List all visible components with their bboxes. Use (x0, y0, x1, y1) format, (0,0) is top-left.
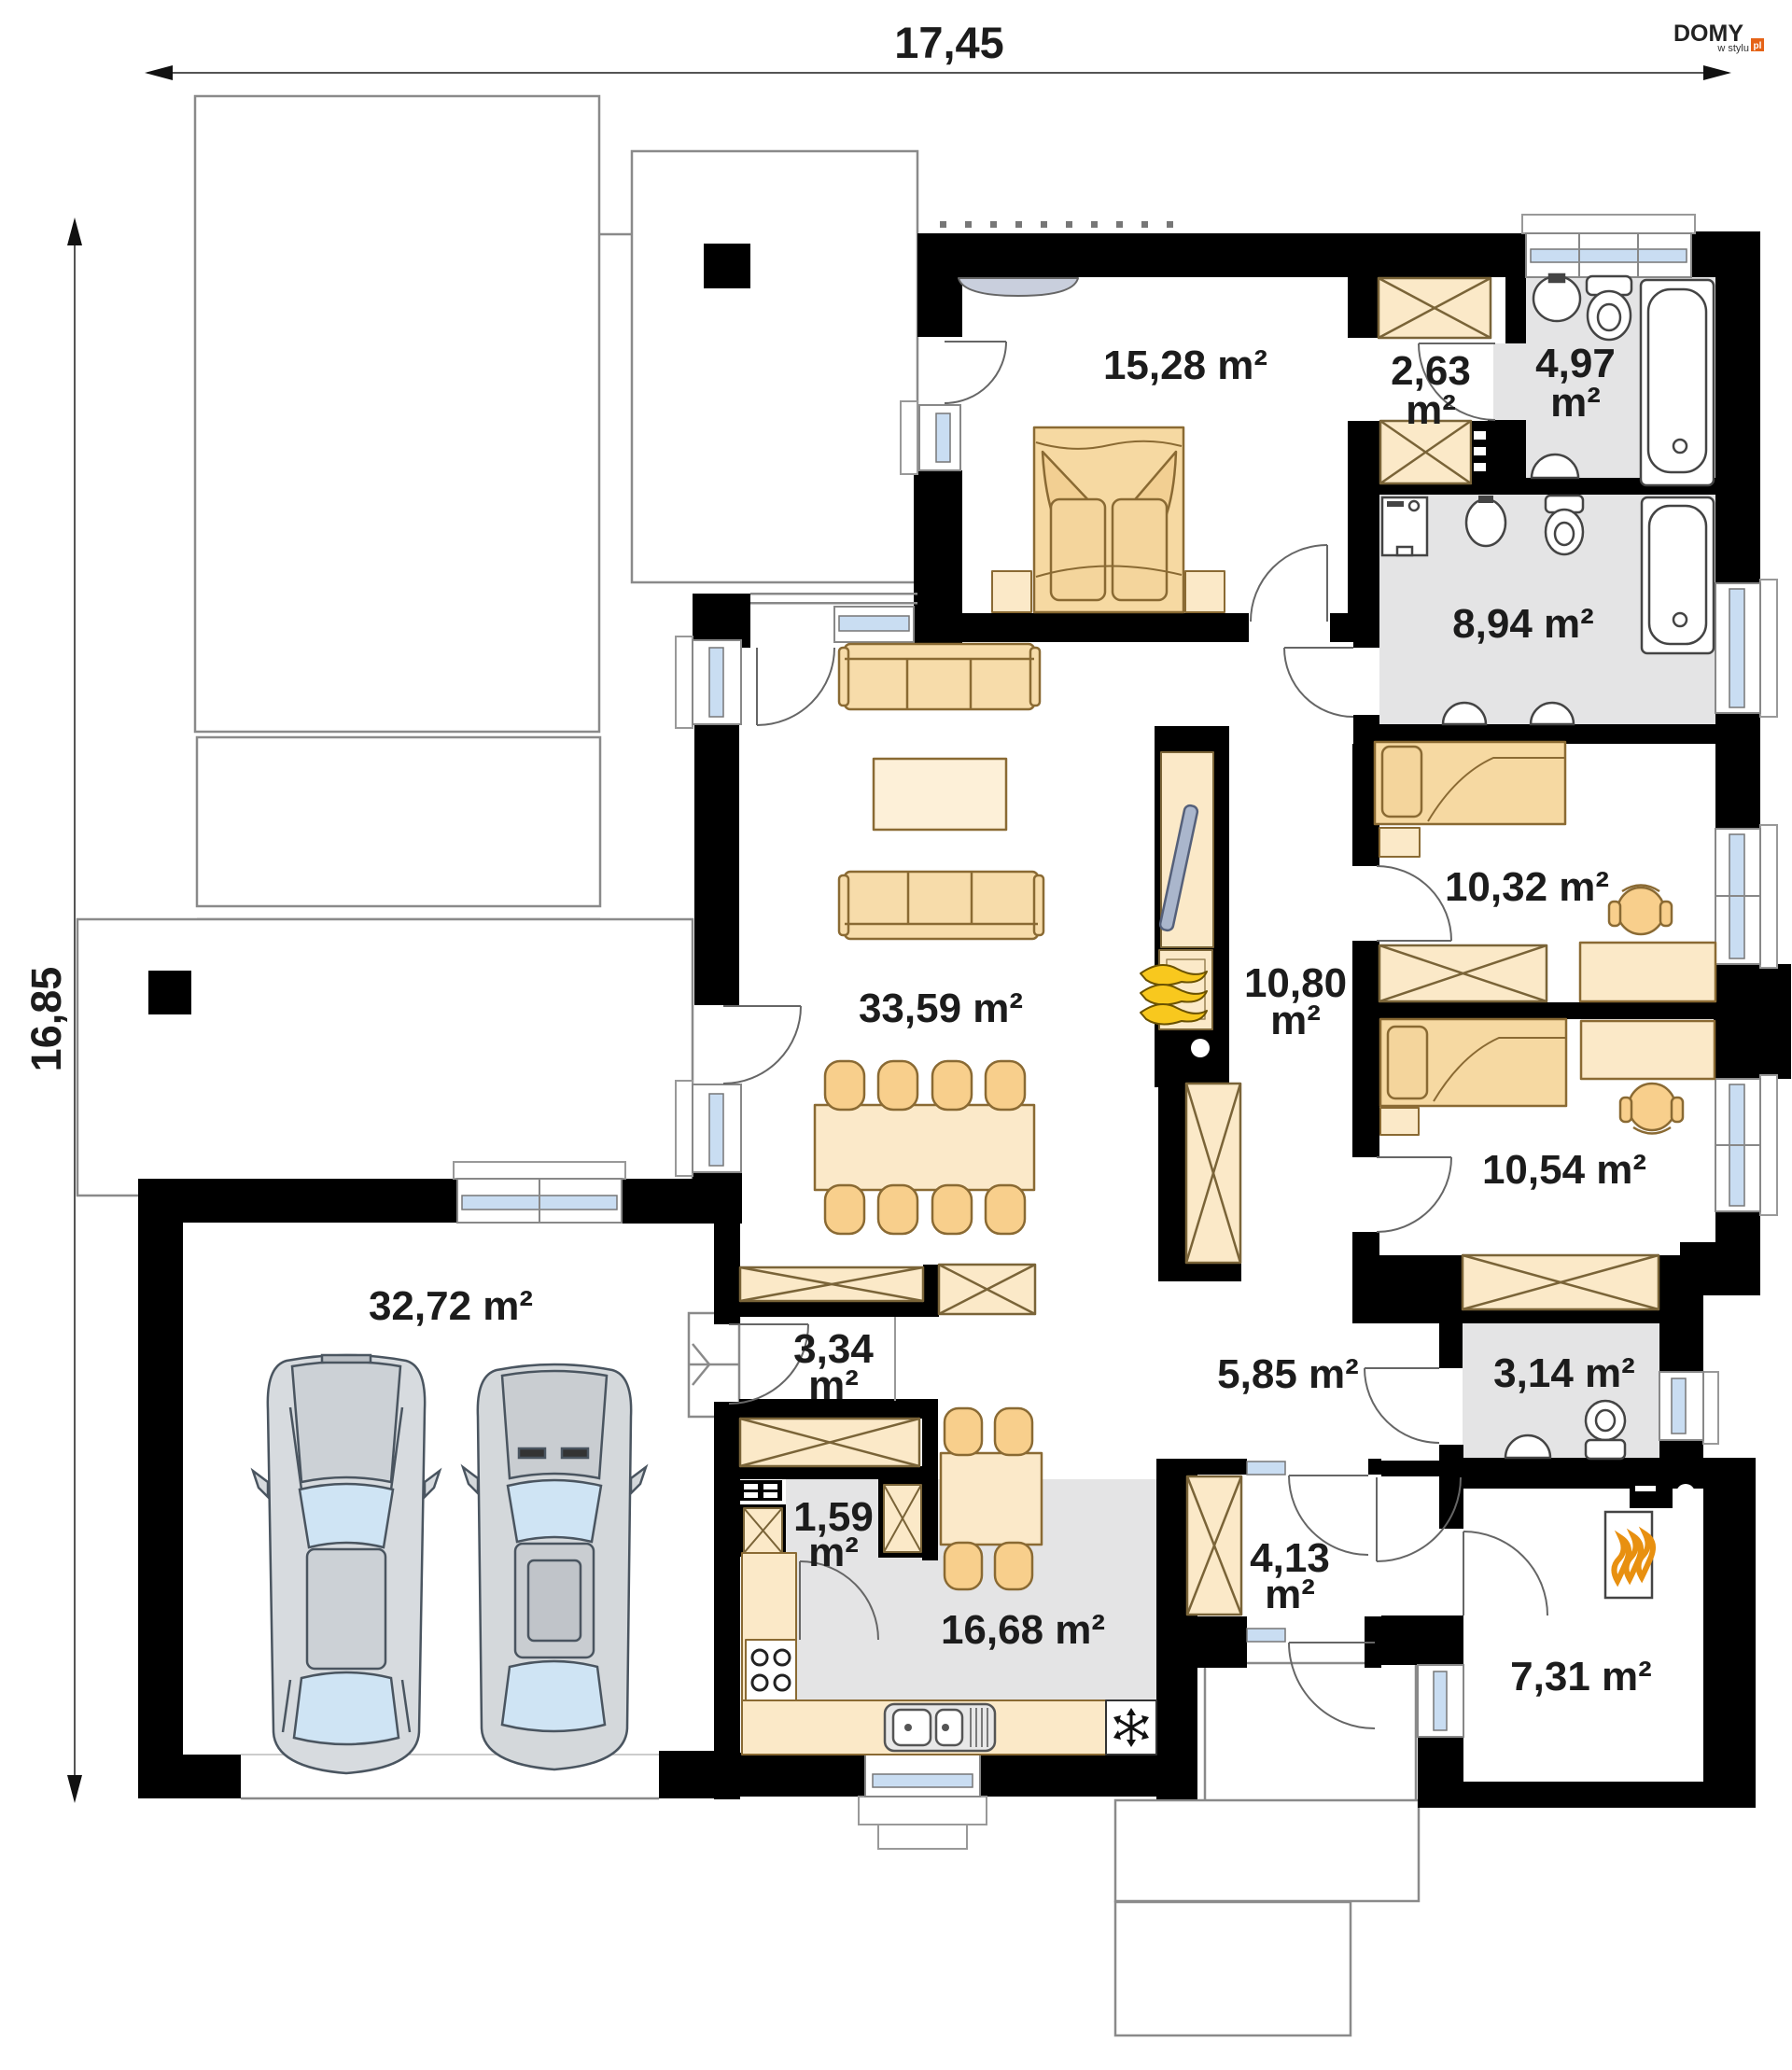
svg-text:m²: m² (808, 1363, 859, 1408)
svg-text:pl: pl (1754, 41, 1762, 51)
svg-text:5,85 m²: 5,85 m² (1217, 1351, 1359, 1397)
svg-text:16,85: 16,85 (22, 967, 70, 1072)
svg-text:10,32 m²: 10,32 m² (1445, 864, 1609, 910)
svg-text:17,45: 17,45 (894, 18, 1004, 67)
svg-text:w stylu: w stylu (1716, 43, 1749, 54)
svg-text:m²: m² (1406, 387, 1456, 433)
svg-text:7,31 m²: 7,31 m² (1510, 1654, 1652, 1699)
svg-text:m²: m² (808, 1530, 859, 1575)
svg-text:16,68 m²: 16,68 m² (941, 1607, 1105, 1653)
svg-text:8,94 m²: 8,94 m² (1452, 601, 1594, 647)
svg-text:m²: m² (1265, 1572, 1315, 1617)
svg-text:m²: m² (1550, 380, 1601, 426)
svg-text:10,54 m²: 10,54 m² (1482, 1147, 1646, 1193)
svg-text:15,28 m²: 15,28 m² (1103, 343, 1267, 388)
svg-text:3,14 m²: 3,14 m² (1493, 1350, 1635, 1396)
svg-text:m²: m² (1270, 998, 1321, 1043)
svg-text:33,59 m²: 33,59 m² (859, 986, 1023, 1031)
svg-text:32,72 m²: 32,72 m² (369, 1283, 533, 1329)
